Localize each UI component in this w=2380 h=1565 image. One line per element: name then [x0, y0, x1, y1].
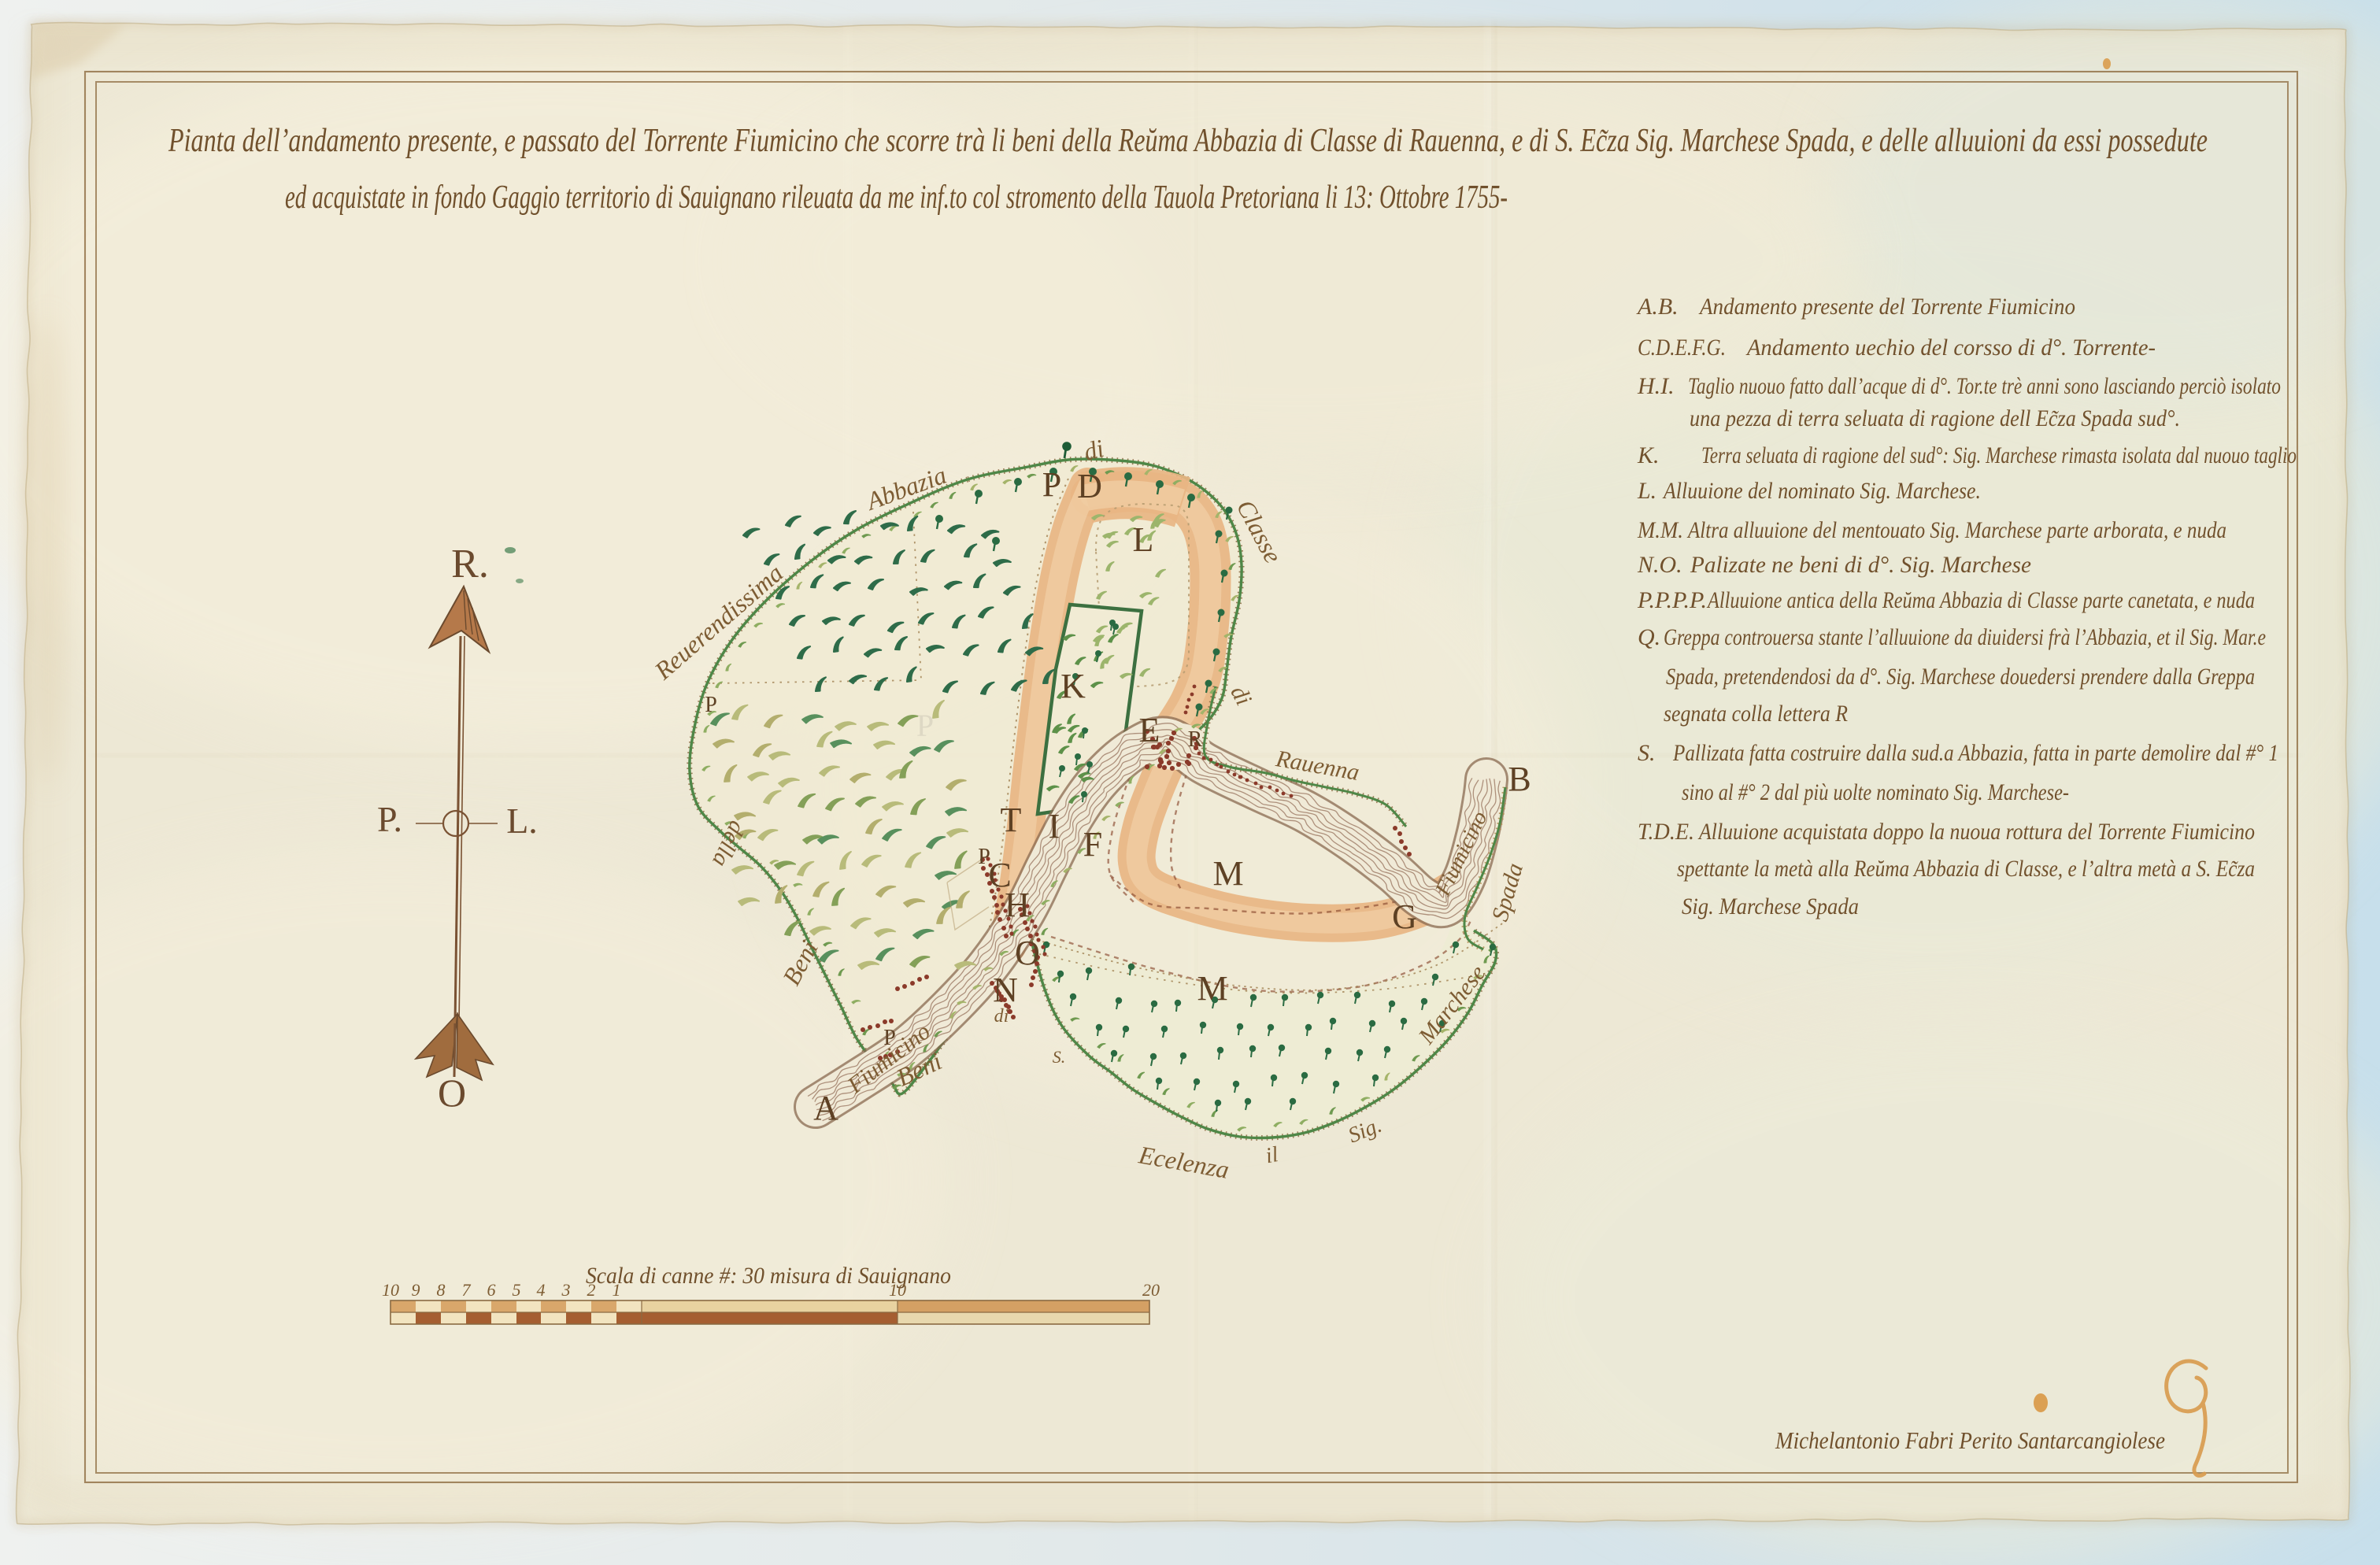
svg-text:I: I	[1049, 807, 1060, 845]
svg-text:M.M.: M.M.	[1637, 517, 1683, 543]
svg-text:Altra alluuione del mentouato: Altra alluuione del mentouato Sig. March…	[1686, 517, 2226, 543]
svg-text:P.: P.	[377, 799, 402, 839]
svg-text:A: A	[813, 1089, 838, 1127]
svg-text:G: G	[1392, 897, 1417, 936]
svg-text:Terra seluata di ragione del s: Terra seluata di ragione del sud°: Sig. …	[1701, 442, 2297, 468]
svg-text:H: H	[1005, 886, 1030, 924]
svg-text:B: B	[1508, 760, 1531, 798]
svg-text:Pianta dell’andamento presente: Pianta dell’andamento presente, e passat…	[168, 123, 2208, 159]
svg-text:Andamento uechio del corsso di: Andamento uechio del corsso di d°. Torre…	[1745, 335, 2156, 361]
svg-text:1: 1	[613, 1280, 621, 1300]
svg-text:L.: L.	[1637, 478, 1656, 504]
svg-text:2: 2	[587, 1280, 596, 1300]
svg-text:3: 3	[561, 1280, 571, 1300]
svg-text:Alluuione del nominato Sig. Ma: Alluuione del nominato Sig. Marchese.	[1662, 478, 1981, 504]
svg-text:S.: S.	[1638, 740, 1656, 766]
svg-text:C.D.E.F.G.: C.D.E.F.G.	[1638, 335, 1726, 361]
svg-text:Sig. Marchese Spada: Sig. Marchese Spada	[1682, 893, 1859, 919]
svg-text:N.O.: N.O.	[1637, 552, 1682, 578]
svg-text:Spada, pretendendosi da d°. Si: Spada, pretendendosi da d°. Sig. Marches…	[1666, 664, 2255, 690]
svg-text:Alluuione acquistata doppo la: Alluuione acquistata doppo la nuoua rott…	[1697, 819, 2255, 845]
svg-text:E: E	[1139, 711, 1160, 749]
svg-text:4: 4	[537, 1280, 546, 1300]
svg-text:di: di	[994, 1006, 1009, 1027]
svg-text:H.I.: H.I.	[1637, 373, 1675, 399]
svg-text:Palizate ne beni di d°. Sig. M: Palizate ne beni di d°. Sig. Marchese	[1690, 552, 2031, 578]
svg-text:20: 20	[1142, 1280, 1160, 1300]
svg-text:L.: L.	[506, 801, 538, 841]
svg-text:S.: S.	[1053, 1047, 1066, 1067]
svg-text:segnata colla lettera R: segnata colla lettera R	[1664, 701, 1848, 727]
svg-text:P: P	[1042, 465, 1061, 504]
svg-text:D: D	[1077, 467, 1102, 505]
svg-text:T.D.E.: T.D.E.	[1638, 819, 1694, 845]
svg-text:spettante la metà alla Reŭma A: spettante la metà alla Reŭma Abbazia di …	[1677, 856, 2255, 882]
svg-text:Michelantonio Fabri Perito San: Michelantonio Fabri Perito Santarcangiol…	[1775, 1426, 2165, 1454]
svg-text:P: P	[705, 693, 717, 717]
svg-text:8: 8	[437, 1280, 446, 1300]
svg-text:Pallizata fatta costruire dall: Pallizata fatta costruire dalla sud.a Ab…	[1672, 740, 2278, 766]
svg-text:P: P	[916, 708, 934, 743]
svg-text:L: L	[1133, 520, 1154, 559]
svg-text:Q.: Q.	[1638, 624, 1660, 650]
svg-text:Alluuione antica della Reŭma A: Alluuione antica della Reŭma Abbazia di …	[1706, 587, 2255, 613]
svg-text:T: T	[1001, 801, 1022, 839]
svg-text:Greppa controuersa stante l’al: Greppa controuersa stante l’alluuione da…	[1664, 624, 2266, 650]
svg-text:R: R	[1188, 727, 1203, 752]
svg-text:O: O	[1015, 934, 1040, 972]
svg-text:9: 9	[412, 1280, 420, 1300]
svg-text:5: 5	[513, 1280, 521, 1300]
svg-text:10: 10	[889, 1280, 906, 1300]
svg-text:R.: R.	[451, 542, 489, 586]
svg-text:sino al #° 2 dal più uolte nom: sino al #° 2 dal più uolte nominato Sig.…	[1682, 779, 2069, 805]
svg-text:6: 6	[487, 1280, 496, 1300]
svg-text:M: M	[1212, 854, 1243, 893]
svg-text:Taglio nuouo fatto dall’acque: Taglio nuouo fatto dall’acque di d°. Tor…	[1688, 373, 2281, 399]
svg-text:una pezza di terra seluata di: una pezza di terra seluata di ragione de…	[1690, 405, 2180, 431]
svg-text:Andamento presente del Torrent: Andamento presente del Torrente Fiumicin…	[1698, 294, 2075, 320]
svg-text:K: K	[1060, 667, 1086, 705]
svg-text:O: O	[438, 1071, 466, 1115]
svg-text:M: M	[1197, 969, 1227, 1008]
svg-text:P.P.P.P.: P.P.P.P.	[1637, 587, 1707, 613]
svg-text:7: 7	[462, 1280, 472, 1300]
svg-text:F: F	[1083, 825, 1102, 864]
svg-text:10: 10	[382, 1280, 399, 1300]
svg-text:P: P	[978, 845, 990, 869]
svg-text:N: N	[993, 971, 1018, 1009]
svg-text:ed acquistate in fondo Gaggio: ed acquistate in fondo Gaggio territorio…	[285, 179, 1508, 216]
svg-text:K.: K.	[1637, 442, 1660, 468]
svg-text:A.B.: A.B.	[1636, 294, 1679, 320]
